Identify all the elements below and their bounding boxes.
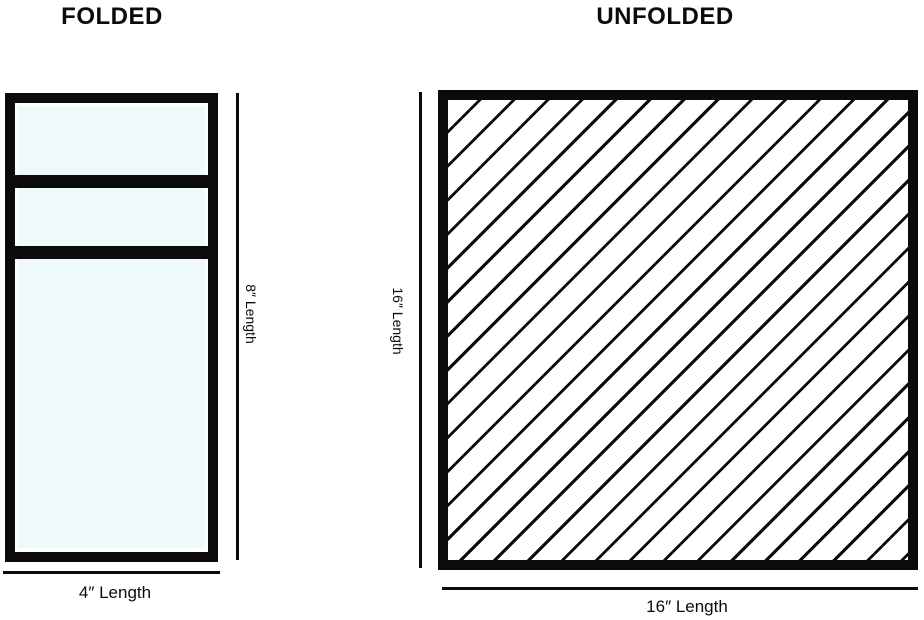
unfolded-width-label: 16″ Length (572, 597, 802, 617)
folded-width-dimension-line (3, 571, 220, 574)
folded-bottom-section (18, 259, 205, 548)
folded-top-section (18, 106, 205, 175)
towel-fold-diagram: FOLDED 8″ Length 4″ Length UNFOLDED 16″ … (0, 0, 924, 620)
diagonal-hatch-pattern (448, 100, 908, 560)
fold-line-1 (15, 175, 208, 188)
folded-towel-diagram (5, 93, 218, 562)
folded-width-label: 4″ Length (0, 583, 230, 603)
unfolded-towel-diagram (438, 90, 918, 570)
unfolded-height-label: 16″ Length (390, 287, 406, 354)
unfolded-width-dimension-line (442, 587, 918, 590)
folded-title: FOLDED (0, 3, 224, 31)
folded-height-label: 8″ Length (243, 284, 259, 343)
folded-middle-section (18, 188, 205, 246)
unfolded-title: UNFOLDED (553, 3, 777, 31)
folded-height-dimension-line (236, 93, 239, 560)
unfolded-height-dimension-line (419, 92, 422, 568)
fold-line-2 (15, 246, 208, 259)
